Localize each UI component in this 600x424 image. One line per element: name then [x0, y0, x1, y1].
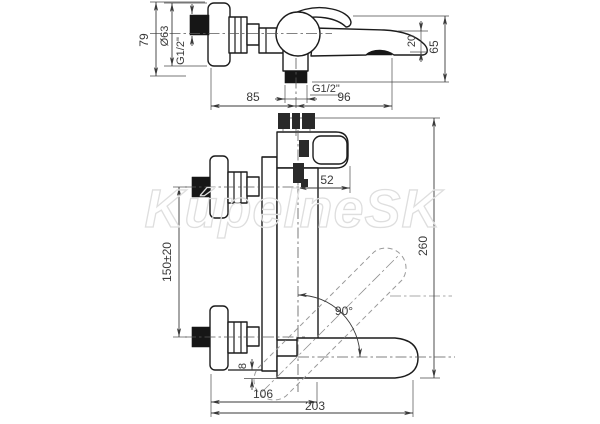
hex-nut	[229, 17, 247, 53]
dimension-106: 106	[211, 374, 317, 417]
dim-106-label: 106	[253, 387, 273, 401]
dim-90-label: 90°	[335, 304, 353, 318]
dim-g12-outlet-label: G1/2"	[312, 83, 340, 95]
dim-85-label: 85	[246, 90, 260, 104]
wall-flange	[210, 306, 228, 370]
watermark-text: KúpelneSK	[144, 179, 444, 239]
dim-20-label: 20	[406, 35, 418, 47]
handle-dome	[276, 12, 320, 56]
wall-flange	[208, 3, 230, 66]
dimension-79: 79	[137, 2, 205, 76]
dimension-outlet-thread: G1/2"	[275, 83, 341, 103]
dim-65-label: 65	[427, 40, 441, 54]
lower-wall-connection	[192, 306, 259, 370]
wall-connection-assembly	[190, 3, 259, 66]
handle-end-view	[313, 136, 347, 164]
front-view: 90° 52 150±20 260 8	[160, 113, 455, 417]
side-view: 79 Ø63 G1/2" 85 96	[137, 2, 449, 110]
faucet-body-side	[259, 8, 427, 83]
connector	[247, 24, 259, 45]
dim-g12-wall-label: G1/2"	[175, 37, 187, 65]
connector	[247, 327, 259, 346]
dim-79-label: 79	[137, 33, 151, 47]
hex-nut	[228, 322, 247, 353]
dim-dia63-label: Ø63	[159, 26, 171, 47]
dim-150-label: 150±20	[160, 242, 174, 282]
technical-drawing: 79 Ø63 G1/2" 85 96	[0, 0, 600, 424]
wall-thread	[190, 15, 209, 35]
dimension-wall-thread: G1/2"	[175, 4, 192, 65]
dim-203-label: 203	[305, 399, 325, 413]
dim-8-label: 8	[237, 363, 249, 369]
dimension-203: 203	[211, 380, 413, 417]
